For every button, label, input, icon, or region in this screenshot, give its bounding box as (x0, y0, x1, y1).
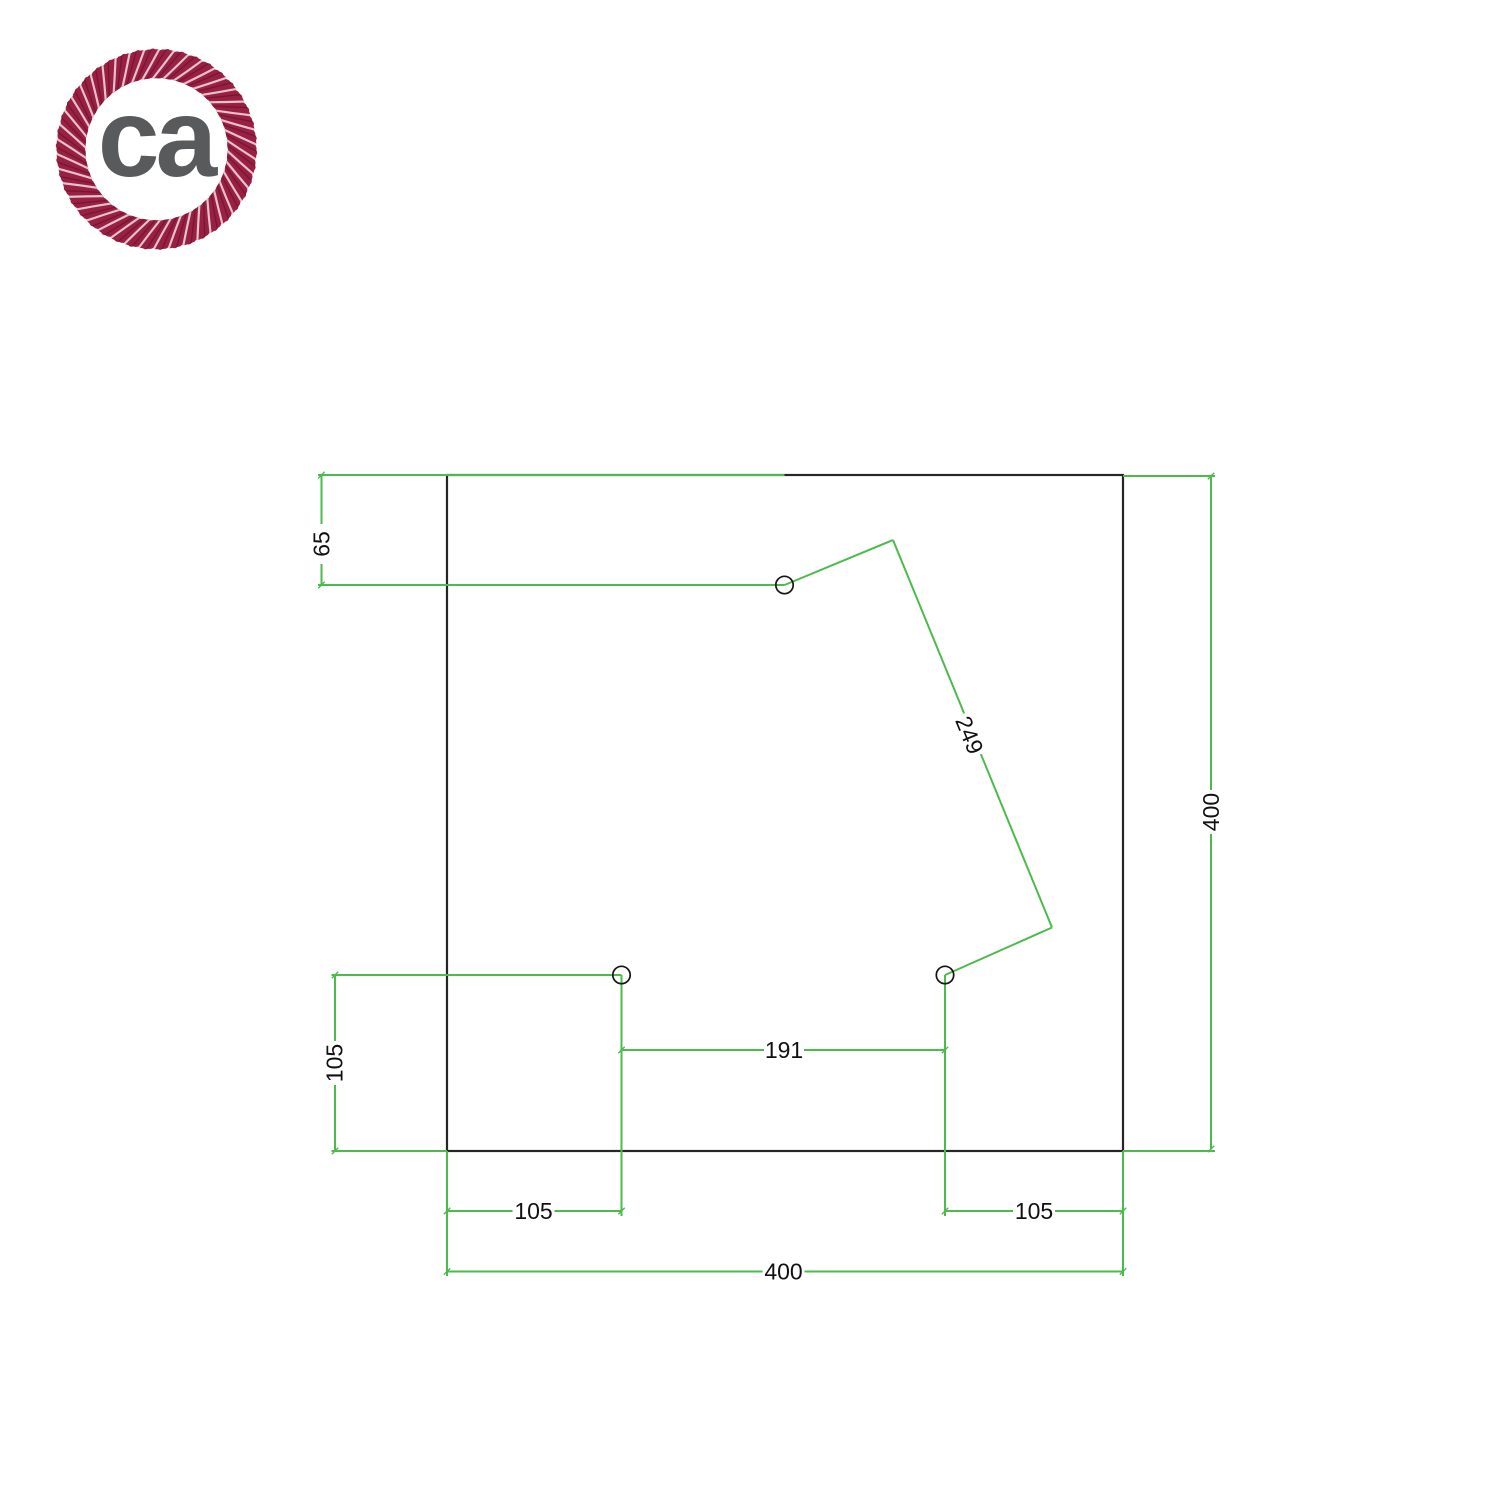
svg-text:65: 65 (309, 531, 335, 557)
svg-text:105: 105 (514, 1198, 552, 1224)
svg-text:191: 191 (765, 1037, 803, 1063)
svg-text:105: 105 (322, 1044, 348, 1082)
svg-text:105: 105 (1015, 1198, 1053, 1224)
svg-text:ca: ca (98, 76, 219, 200)
svg-text:400: 400 (764, 1259, 802, 1285)
svg-text:400: 400 (1198, 793, 1224, 831)
